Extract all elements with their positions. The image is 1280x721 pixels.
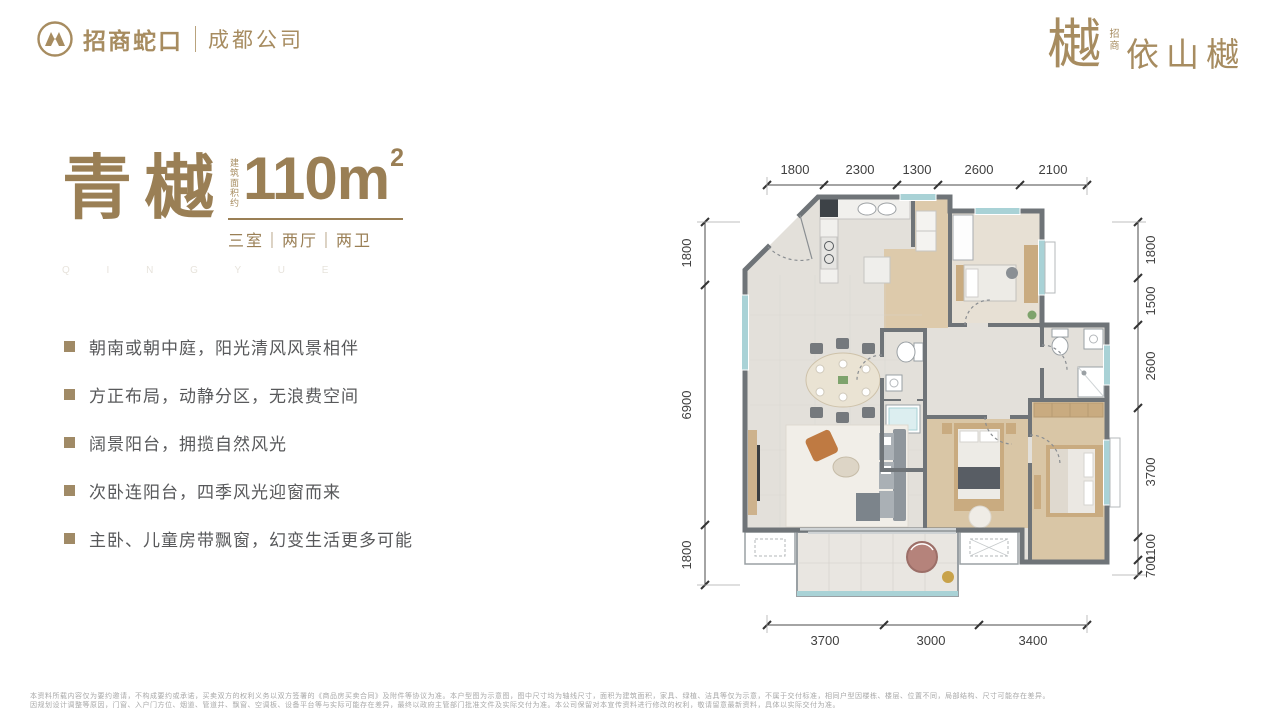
brand-logo: 招商蛇口 成都公司	[36, 20, 304, 58]
feature-text: 主卧、儿童房带飘窗，幻变生活更多可能	[89, 526, 413, 551]
feature-text: 方正布局，动静分区，无浪费空间	[89, 382, 359, 407]
feature-item: 朝南或朝中庭，阳光清风风景相伴	[64, 334, 413, 359]
feature-list: 朝南或朝中庭，阳光清风风景相伴 方正布局，动静分区，无浪费空间 阔景阳台，拥揽自…	[64, 334, 413, 574]
feature-text: 朝南或朝中庭，阳光清风风景相伴	[89, 334, 359, 359]
disclaimer: 本资料所载内容仅为要约邀请，不构成要约或承诺，买卖双方的权利义务以双方签署的《商…	[30, 692, 1254, 710]
dim-label: 2300	[846, 162, 875, 177]
dim-label: 6900	[679, 391, 694, 420]
dim-label: 700	[1143, 556, 1158, 578]
bullet-square-icon	[64, 485, 75, 496]
unit-name: 青樾	[62, 146, 226, 230]
feature-text: 阔景阳台，拥揽自然风光	[89, 430, 287, 455]
unit-area-group: 建筑面积约 110m 2 三室｜两厅｜两卫	[228, 146, 403, 251]
project-small-label: 招商	[1105, 28, 1120, 52]
feature-item: 阔景阳台，拥揽自然风光	[64, 430, 413, 455]
project-name: 依山樾	[1126, 28, 1246, 76]
room-config-label: 三室｜两厅｜两卫	[228, 218, 403, 251]
disclaimer-line-2: 因规划设计调整等原因，门窗、入户门方位、烟道、管道井、飘窗、空调板、设备平台等与…	[30, 701, 1254, 710]
brand-sub-name: 成都公司	[208, 24, 304, 54]
dim-label: 1500	[1143, 287, 1158, 316]
hero-watermark-text: Q I N G Y U E	[62, 265, 403, 276]
ac-platform-left	[745, 532, 795, 564]
dim-label: 3000	[917, 633, 946, 648]
bullet-square-icon	[64, 533, 75, 544]
project-logo: 樾 招商 依山樾	[1047, 10, 1246, 80]
dim-label: 2600	[1143, 352, 1158, 381]
entry-cabinet	[916, 211, 936, 251]
dim-label: 1800	[679, 239, 694, 268]
unit-hero: 青樾 建筑面积约 110m 2 三室｜两厅｜两卫 Q I N G Y U E	[62, 146, 403, 276]
area-prefix-label: 建筑面积约	[228, 158, 241, 216]
area-value: 110m	[243, 146, 389, 212]
bullet-square-icon	[64, 389, 75, 400]
feature-item: 方正布局，动静分区，无浪费空间	[64, 382, 413, 407]
ac-platform-right	[960, 532, 1018, 564]
dim-label: 1800	[781, 162, 810, 177]
poster-page: 招商蛇口 成都公司 樾 招商 依山樾 青樾 建筑面积约 110m 2 三室｜两厅…	[0, 0, 1280, 721]
dim-label: 3700	[1143, 458, 1158, 487]
dim-label: 1300	[903, 162, 932, 177]
brand-name: 招商蛇口	[83, 22, 183, 56]
bullet-square-icon	[64, 437, 75, 448]
feature-text: 次卧连阳台，四季风光迎窗而来	[89, 478, 341, 503]
dim-label: 3400	[1019, 633, 1048, 648]
floorplan-drawing: 1800 2300 1300 2600 2100 3700 3000 3400 …	[660, 145, 1180, 655]
feature-item: 次卧连阳台，四季风光迎窗而来	[64, 478, 413, 503]
cmsk-mountain-icon	[36, 20, 74, 58]
dim-label: 3700	[811, 633, 840, 648]
bullet-square-icon	[64, 341, 75, 352]
dim-label: 2600	[965, 162, 994, 177]
brand-divider	[195, 26, 196, 52]
project-mark-glyph: 樾	[1047, 10, 1101, 80]
dim-label: 1800	[679, 541, 694, 570]
feature-item: 主卧、儿童房带飘窗，幻变生活更多可能	[64, 526, 413, 551]
dim-label: 1800	[1143, 236, 1158, 265]
area-superscript: 2	[390, 144, 404, 173]
disclaimer-line-1: 本资料所载内容仅为要约邀请，不构成要约或承诺，买卖双方的权利义务以双方签署的《商…	[30, 692, 1254, 701]
dim-label: 2100	[1039, 162, 1068, 177]
